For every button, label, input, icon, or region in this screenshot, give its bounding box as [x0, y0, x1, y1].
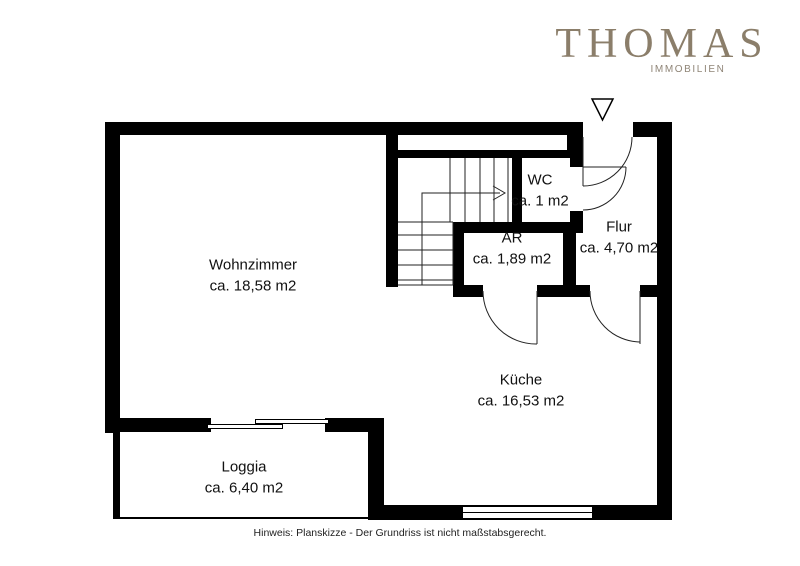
room-label-flur: Flur ca. 4,70 m2 [580, 217, 658, 258]
wall-loggia-kueche [368, 418, 384, 520]
wall-loggia-top-left [113, 418, 211, 432]
room-name: Flur [580, 217, 658, 238]
plan-disclaimer: Hinweis: Planskizze - Der Grundriss ist … [250, 527, 550, 539]
wall-kueche-top-c [640, 285, 657, 297]
wall-loggia-top-right [325, 418, 384, 432]
wall-wc-right-upper [570, 158, 583, 167]
floor-plan-page: THOMAS IMMOBILIEN [0, 0, 800, 566]
sliding-door-panel-left [207, 424, 283, 429]
wall-loggia-left [113, 425, 120, 519]
room-label-wohnzimmer: Wohnzimmer ca. 18,58 m2 [209, 255, 297, 296]
wall-kueche-top-b [537, 285, 590, 297]
wall-right-outer [657, 122, 672, 520]
room-name: AR [473, 228, 551, 249]
plan-symbols [0, 0, 800, 566]
wall-left-outer [105, 122, 120, 433]
room-area: ca. 1 m2 [511, 191, 569, 212]
room-area: ca. 16,53 m2 [478, 391, 565, 412]
room-label-kueche: Küche ca. 16,53 m2 [478, 370, 565, 411]
brand-name: THOMAS [548, 20, 776, 68]
brand-tagline: IMMOBILIEN [640, 64, 736, 75]
room-area: ca. 1,89 m2 [473, 249, 551, 270]
entrance-arrow-icon [592, 99, 613, 120]
room-name: Loggia [205, 457, 283, 478]
sliding-door-panel-right [255, 419, 329, 424]
room-area: ca. 6,40 m2 [205, 478, 283, 499]
flur-kueche-door-swing [590, 291, 640, 344]
window-top [398, 135, 567, 150]
wall-stair-left [386, 135, 398, 287]
room-label-wc: WC ca. 1 m2 [511, 170, 569, 211]
room-name: WC [511, 170, 569, 191]
wall-top-left [105, 122, 398, 135]
brand-logo: THOMAS IMMOBILIEN [548, 18, 776, 80]
room-name: Wohnzimmer [209, 255, 297, 276]
ar-door-swing [483, 291, 537, 344]
room-label-ar: AR ca. 1,89 m2 [473, 228, 551, 269]
wc-door-swing [583, 167, 626, 210]
room-area: ca. 18,58 m2 [209, 276, 297, 297]
wall-kueche-top-a [453, 285, 483, 297]
room-label-loggia: Loggia ca. 6,40 m2 [205, 457, 283, 498]
entrance-door-swing [583, 137, 632, 186]
room-area: ca. 4,70 m2 [580, 238, 658, 259]
loggia-bottom-edge [113, 517, 370, 519]
window-bottom-mullion [463, 512, 592, 513]
room-name: Küche [478, 370, 565, 391]
